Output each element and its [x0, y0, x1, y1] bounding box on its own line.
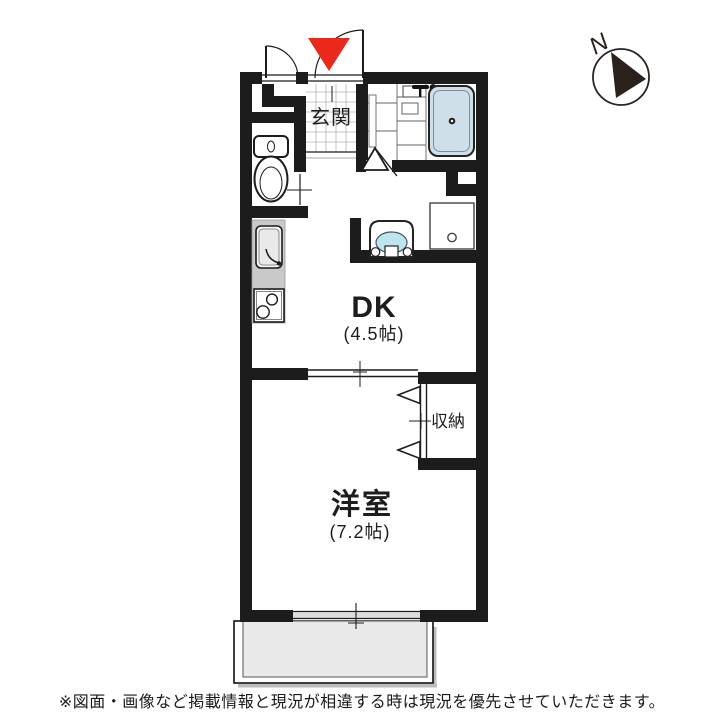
bath-panel — [369, 95, 376, 147]
toilet-knob — [268, 141, 275, 152]
wall-right — [476, 72, 488, 622]
wall-bottom-b — [420, 610, 488, 622]
balcony-slab — [243, 621, 427, 677]
balcony-shadow-bottom — [238, 684, 437, 688]
western-room-size-label: (7.2帖) — [329, 522, 390, 542]
stove-burner-large — [257, 306, 269, 318]
wall-partition-solid — [252, 368, 308, 380]
disclaimer-text: ※図面・画像など掲載情報と現況が相違する時は現況を優先させていただきます。 — [59, 693, 665, 711]
wall-toilet-top — [252, 112, 294, 123]
kitchen-sink-inner — [259, 229, 279, 265]
entrance-label: 玄関 — [310, 106, 352, 129]
wall-closet-bottom — [418, 458, 476, 470]
balcony — [234, 621, 437, 688]
washbasin-handle-left — [371, 248, 380, 257]
wall-closet-top — [418, 372, 476, 384]
wall-ps-horizontal — [446, 184, 476, 196]
wall-bath-bottom-b — [392, 160, 476, 172]
wall-left — [240, 72, 252, 622]
bath-faucet-icon — [412, 85, 429, 89]
wall-top-a — [240, 72, 262, 84]
dk-label: DK — [351, 291, 396, 324]
floorplan-svg: N 玄関 DK (4.5帖) 洋室 (7.2帖) 収納 ※図面・画像など掲載情報… — [0, 0, 720, 720]
kitchen — [252, 220, 285, 323]
floorplan-image: N 玄関 DK (4.5帖) 洋室 (7.2帖) 収納 ※図面・画像など掲載情報… — [0, 0, 720, 720]
washing-machine-drain — [448, 233, 456, 241]
washbasin-pedestal — [385, 246, 398, 257]
bath-shelf-b — [402, 103, 418, 114]
dk-size-label: (4.5帖) — [343, 324, 404, 344]
washbasin-handle-right — [403, 248, 412, 257]
toilet-icon — [254, 136, 288, 202]
wall-genkan-left — [294, 96, 306, 172]
wall-top-c — [363, 72, 488, 84]
wall-bath-left — [356, 84, 368, 160]
closet-label: 収納 — [431, 412, 465, 431]
wall-bottom-a — [240, 610, 293, 622]
kitchen-faucet-base — [277, 261, 281, 265]
toilet-bowl — [255, 157, 288, 202]
stove-burner-small — [267, 294, 278, 305]
western-room-label: 洋室 — [331, 487, 393, 521]
bathtub-drain-hole — [451, 120, 453, 122]
wall-toilet-bottom — [252, 206, 308, 218]
